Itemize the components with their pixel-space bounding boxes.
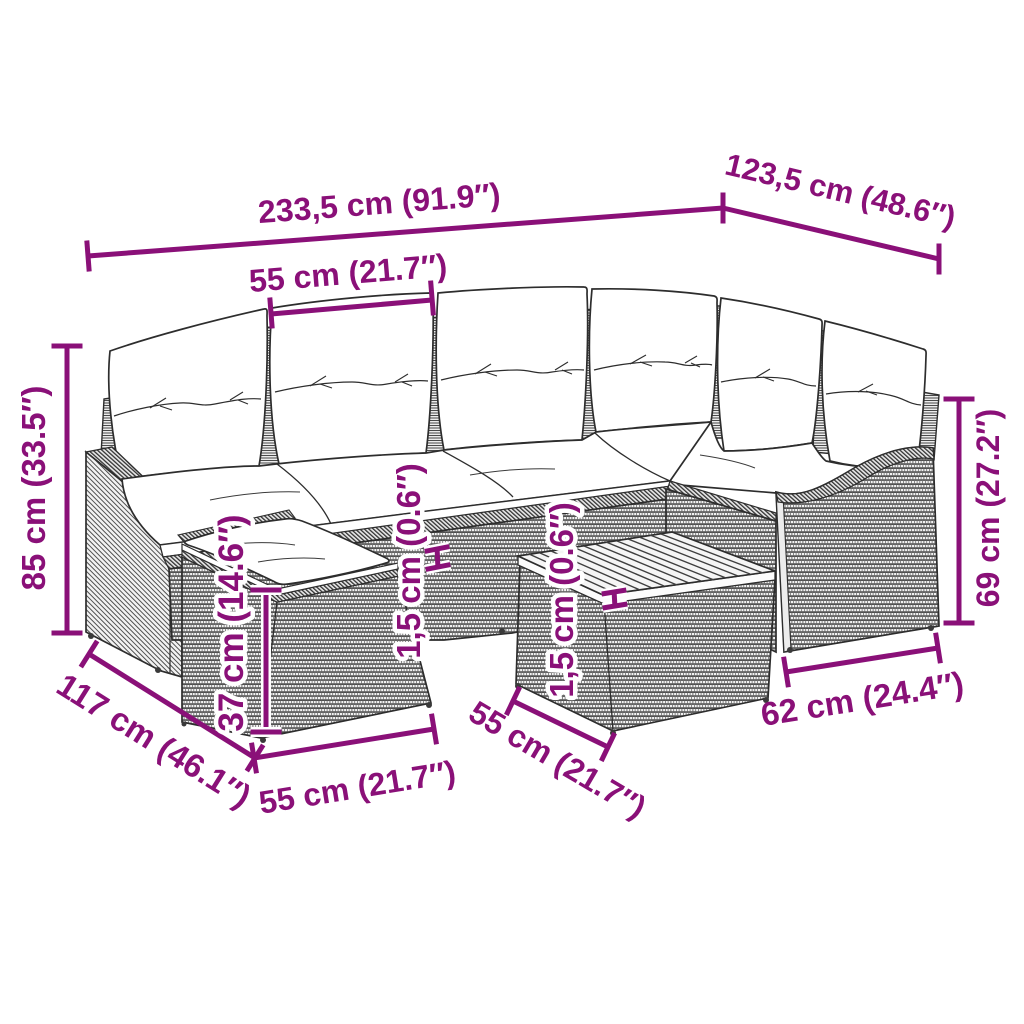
svg-text:85 cm (33.5″): 85 cm (33.5″) <box>15 386 52 591</box>
svg-text:1,5 cm (0.6″): 1,5 cm (0.6″) <box>543 502 580 698</box>
svg-text:1,5 cm (0.6″): 1,5 cm (0.6″) <box>390 463 427 659</box>
svg-text:69 cm (27.2″): 69 cm (27.2″) <box>970 409 1006 608</box>
svg-text:37 cm (14.6″): 37 cm (14.6″) <box>212 514 251 731</box>
